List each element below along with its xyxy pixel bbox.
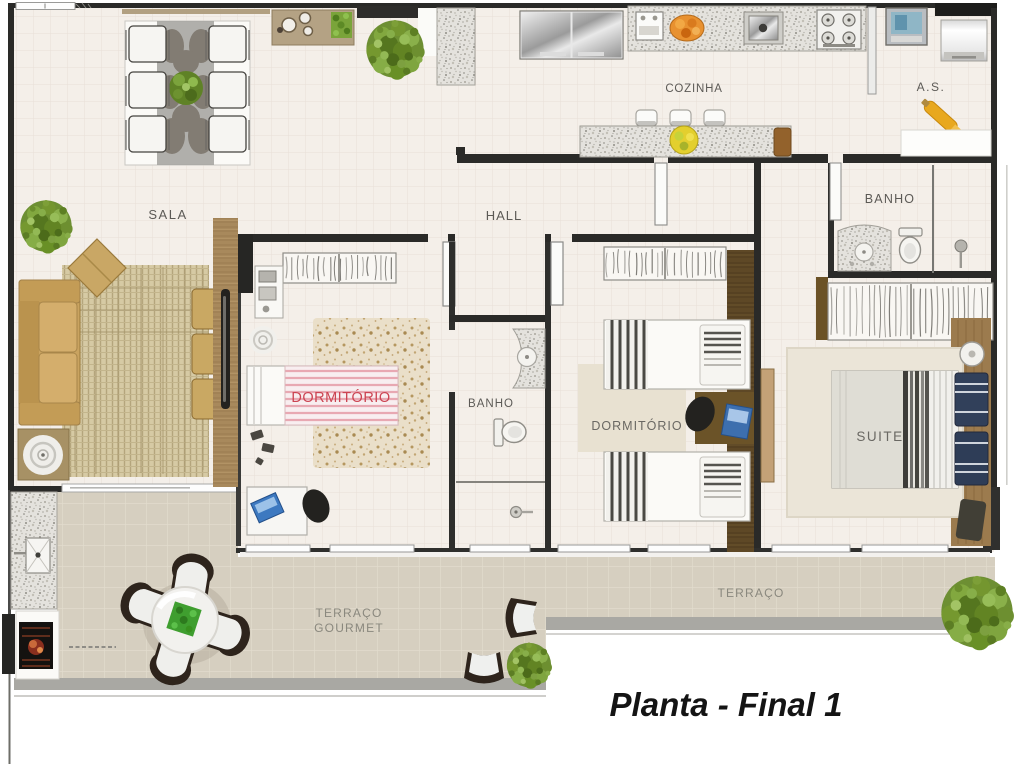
svg-text:BANHO: BANHO — [865, 192, 915, 206]
svg-text:SALA: SALA — [148, 207, 187, 222]
svg-text:TERRAÇO: TERRAÇO — [315, 606, 382, 620]
svg-text:HALL: HALL — [486, 208, 523, 223]
svg-text:Planta - Final 1: Planta - Final 1 — [610, 686, 843, 723]
svg-text:COZINHA: COZINHA — [665, 83, 722, 95]
svg-text:DORMITÓRIO: DORMITÓRIO — [591, 418, 682, 433]
svg-text:GOURMET: GOURMET — [314, 621, 384, 635]
svg-text:BANHO: BANHO — [468, 398, 514, 410]
svg-text:DORMITÓRIO: DORMITÓRIO — [291, 389, 390, 406]
svg-text:TERRAÇO: TERRAÇO — [717, 586, 784, 600]
svg-text:SUITE: SUITE — [856, 429, 903, 444]
svg-text:A.S.: A.S. — [917, 80, 946, 94]
